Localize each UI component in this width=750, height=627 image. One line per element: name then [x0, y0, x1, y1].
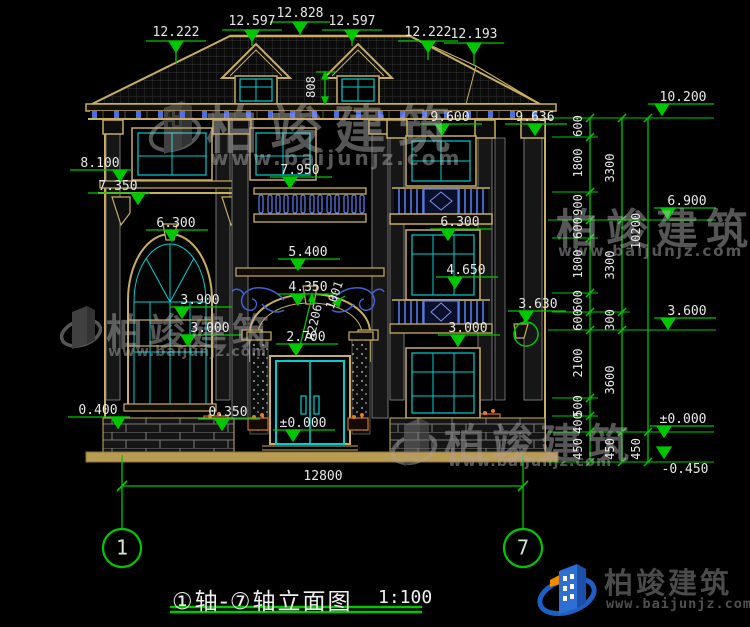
- watermark-logo-icon: [390, 414, 438, 472]
- left-elev-8100: 8.100: [69, 156, 131, 171]
- right-elev-9636: 9.636: [504, 110, 566, 125]
- watermark-logo-icon: [60, 302, 102, 354]
- roof-height-dim: 808: [304, 76, 318, 98]
- right-elev-4650: 4.650: [435, 263, 497, 278]
- drawing-title: ①轴-⑦轴立面图: [172, 582, 353, 616]
- watermark-url: www.baijunjz.com: [558, 242, 743, 260]
- chain-inner-seg: 450: [571, 427, 585, 471]
- left-elev-7350: 7.350: [87, 179, 149, 194]
- right-elev-3000: 3.000: [437, 321, 499, 336]
- chain-inner-seg: 600: [571, 298, 585, 342]
- watermark-url: www.baijunjz.com: [448, 454, 612, 470]
- right-1f-window: [406, 348, 480, 418]
- brand-logo-icon: [536, 556, 602, 622]
- brand-logo-url: www.baijunjz.com: [606, 596, 750, 612]
- watermark-url: www.baijunjz.com: [108, 344, 267, 360]
- center-elev-zero: ±0.000: [272, 416, 334, 431]
- chain-mid-seg: 3300: [603, 243, 617, 287]
- level-6900: 6.900: [654, 194, 720, 209]
- chain-mid-seg: 3600: [603, 358, 617, 402]
- left-elev-3900: 3.900: [169, 293, 231, 308]
- chain-mid-seg: 3300: [603, 146, 617, 190]
- balustrade: [254, 188, 366, 194]
- right-elev-3630: 3.630: [507, 297, 569, 312]
- left-elev-6300: 6.300: [145, 216, 207, 231]
- level-minus-0450: -0.450: [652, 462, 718, 477]
- top-elev-dormer-right: 12.597: [321, 14, 383, 29]
- level-10200: 10.200: [650, 90, 716, 105]
- left-elev-0400: 0.400: [67, 403, 129, 418]
- center-elev-7950: 7.950: [269, 163, 331, 178]
- chain-inner-seg: 1800: [571, 141, 585, 185]
- right-elev-9600: 9.600: [419, 110, 481, 125]
- brand-logo: 柏竣建筑 www.baijunjz.com: [536, 556, 748, 624]
- left-elev-3000: 3.000: [179, 321, 241, 336]
- top-elev-right-wing: 12.193: [443, 27, 505, 42]
- cad-elevation-sheet: 柏竣建筑 www.baijunjz.com 柏竣建筑 www.baijunjz.…: [0, 0, 750, 627]
- top-elev-left-eave: 12.222: [145, 25, 207, 40]
- left-elev-0350: 0.350: [197, 405, 259, 420]
- chain-mid-seg: 300: [603, 298, 617, 342]
- chain-outer-seg: 450: [629, 427, 643, 471]
- level-3600: 3.600: [654, 304, 720, 319]
- level-zero: ±0.000: [650, 412, 716, 427]
- drawing-scale: 1:100: [378, 587, 432, 608]
- overall-width-dim: 12800: [292, 469, 354, 484]
- right-elev-6300: 6.300: [429, 215, 491, 230]
- chain-outer-seg: 10200: [629, 209, 643, 253]
- axis-7-label: 7: [517, 536, 529, 560]
- center-elev-5400: 5.400: [277, 245, 339, 260]
- chain-inner-seg: 2100: [571, 341, 585, 385]
- chain-mid-seg: 450: [603, 427, 617, 471]
- watermark-logo-icon: [148, 96, 202, 160]
- watermark-url: www.baijunjz.com: [210, 146, 462, 170]
- axis-1-label: 1: [116, 536, 128, 560]
